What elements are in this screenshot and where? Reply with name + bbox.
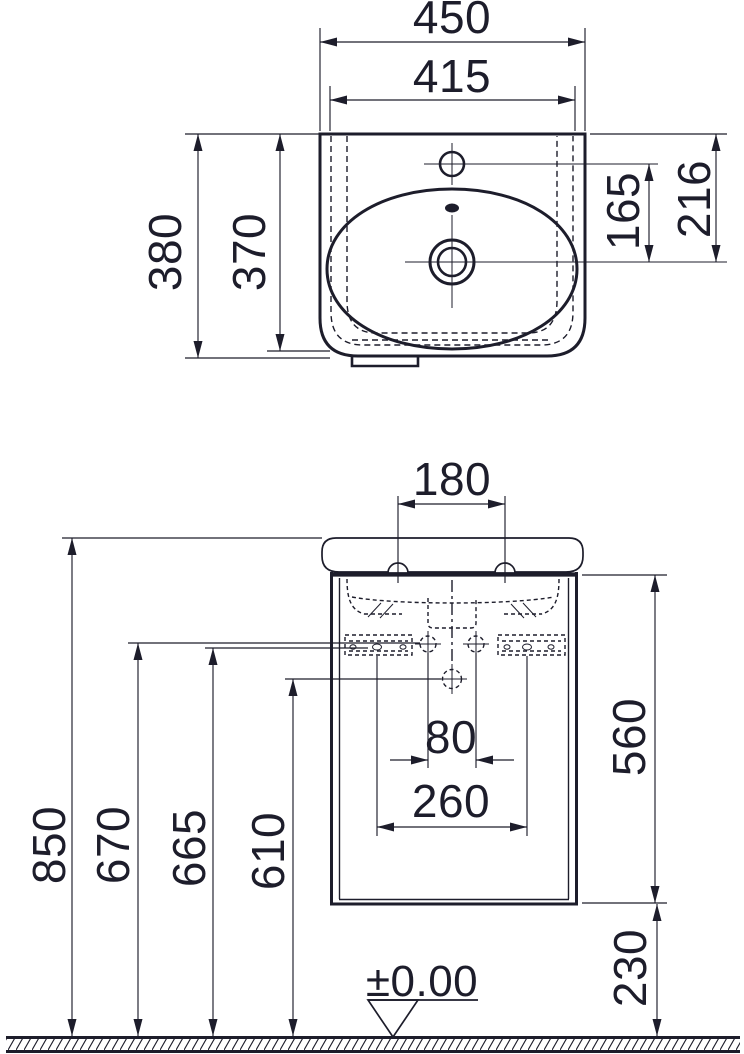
dim-cabinet-height: 560 <box>582 575 667 903</box>
dim-rim-height-label: 850 <box>23 806 75 884</box>
dim-ledge-width: 415 <box>330 50 575 131</box>
dim-inner-depth-label: 370 <box>223 213 275 291</box>
dim-overall-depth-label: 380 <box>139 213 191 291</box>
dim-floor-clearance: 230 <box>604 904 662 1036</box>
dim-fixing-hole-spacing-label: 80 <box>425 711 477 763</box>
floor-level-marker: ±0.00 <box>366 957 478 1037</box>
dim-bracket-hole-spacing-label: 260 <box>412 775 490 827</box>
dim-tap-hole-spacing: 180 <box>398 453 505 583</box>
floor-hatch <box>6 1038 740 1052</box>
dim-cabinet-height-label: 560 <box>603 698 655 776</box>
dim-rear-to-drain-label: 216 <box>668 160 720 238</box>
top-view: 450 415 380 370 <box>139 0 727 366</box>
front-view: 180 80 260 850 <box>6 453 740 1052</box>
dim-floor-clearance-label: 230 <box>604 929 656 1007</box>
dim-fixing-hole-height-label: 665 <box>163 809 215 887</box>
dim-inner-depth: 370 <box>223 134 330 351</box>
floor-level-label: ±0.00 <box>366 957 478 1006</box>
dim-overall-width-label: 450 <box>413 0 491 43</box>
overflow-hole <box>445 204 459 213</box>
dim-bracket-height-label: 670 <box>87 806 139 884</box>
drawing-canvas: 450 415 380 370 <box>0 0 744 1054</box>
dim-ledge-width-label: 415 <box>413 50 491 102</box>
dim-tap-to-drain-label: 165 <box>597 172 649 250</box>
dim-rim-height: 850 <box>23 538 322 1036</box>
dim-tap-to-drain: 165 <box>597 164 654 262</box>
basin-profile <box>322 538 583 572</box>
dim-tap-hole-spacing-label: 180 <box>413 453 491 505</box>
technical-drawing: 450 415 380 370 <box>0 0 744 1054</box>
dim-lower-fixing-height-label: 610 <box>242 812 294 890</box>
fixing-holes <box>415 631 489 694</box>
right-bracket-hole <box>523 644 532 650</box>
right-wall-bracket <box>498 635 565 655</box>
left-wall-bracket <box>345 635 412 655</box>
left-bracket-hole <box>373 644 382 650</box>
